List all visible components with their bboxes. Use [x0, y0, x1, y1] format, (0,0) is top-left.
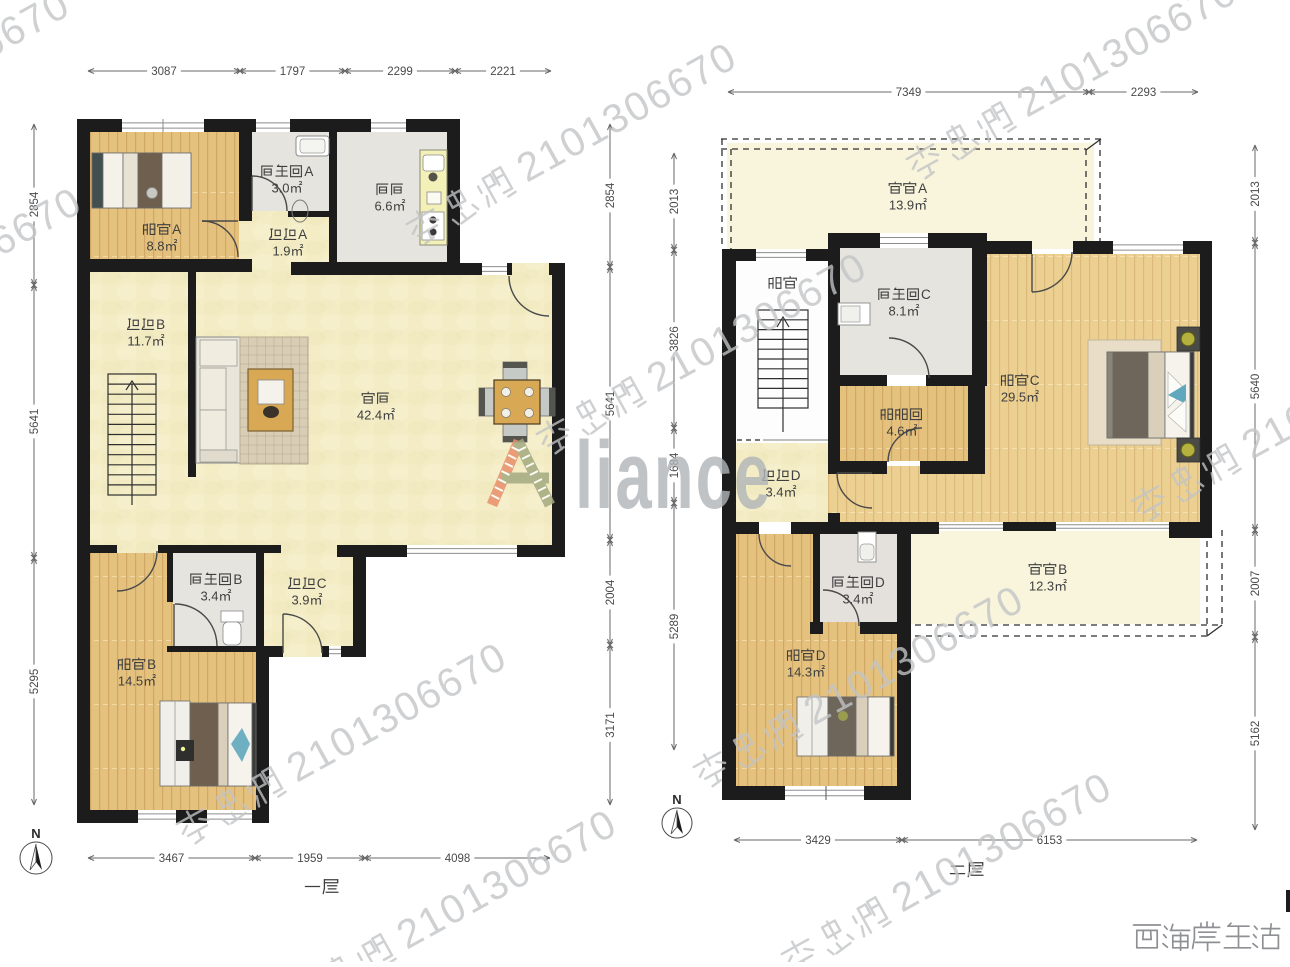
svg-text:6.6㎡: 6.6㎡	[374, 199, 405, 214]
svg-text:A: A	[918, 181, 927, 196]
svg-text:42.4㎡: 42.4㎡	[357, 408, 395, 423]
svg-text:C: C	[317, 576, 327, 591]
svg-text:B: B	[1058, 562, 1067, 577]
svg-text:3171: 3171	[605, 712, 617, 738]
svg-text:29.5㎡: 29.5㎡	[1001, 390, 1039, 405]
svg-text:N: N	[672, 792, 681, 807]
svg-text:5640: 5640	[1250, 374, 1262, 400]
svg-text:4.6㎡: 4.6㎡	[886, 424, 917, 439]
svg-text:2299: 2299	[387, 66, 413, 78]
svg-text:5162: 5162	[1250, 721, 1262, 747]
svg-text:12.3㎡: 12.3㎡	[1029, 579, 1067, 594]
svg-text:1959: 1959	[297, 853, 323, 865]
svg-text:3.4㎡: 3.4㎡	[842, 592, 873, 607]
svg-text:5295: 5295	[29, 669, 41, 695]
svg-text:2007: 2007	[1250, 571, 1262, 597]
svg-text:1.9㎡: 1.9㎡	[272, 244, 303, 259]
svg-text:A: A	[304, 164, 313, 179]
svg-text:3.4㎡: 3.4㎡	[200, 589, 231, 604]
svg-text:8.1㎡: 8.1㎡	[888, 304, 919, 319]
svg-text:D: D	[791, 468, 801, 483]
svg-text:13.9㎡: 13.9㎡	[889, 198, 927, 213]
svg-text:B: B	[147, 657, 156, 672]
svg-text:2013: 2013	[669, 189, 681, 215]
svg-text:3429: 3429	[805, 835, 831, 847]
svg-text:B: B	[156, 317, 165, 332]
svg-text:D: D	[875, 575, 885, 590]
svg-text:A: A	[298, 227, 307, 242]
svg-text:N: N	[31, 826, 40, 841]
svg-text:2221: 2221	[490, 66, 516, 78]
svg-text:D: D	[816, 648, 826, 663]
svg-text:2013: 2013	[1250, 181, 1262, 207]
svg-text:liance: liance	[575, 423, 772, 529]
svg-text:8.8㎡: 8.8㎡	[146, 239, 177, 254]
svg-text:5289: 5289	[669, 614, 681, 640]
svg-text:2004: 2004	[605, 579, 617, 605]
svg-text:3467: 3467	[159, 853, 185, 865]
svg-text:3.9㎡: 3.9㎡	[291, 593, 322, 608]
svg-text:7349: 7349	[896, 87, 922, 99]
svg-text:14.3㎡: 14.3㎡	[787, 665, 825, 680]
svg-text:A: A	[172, 222, 181, 237]
svg-text:2293: 2293	[1131, 87, 1157, 99]
svg-text:3087: 3087	[151, 66, 177, 78]
svg-text:1797: 1797	[280, 66, 306, 78]
svg-text:3.0㎡: 3.0㎡	[271, 181, 302, 196]
svg-text:4098: 4098	[445, 853, 471, 865]
svg-text:2854: 2854	[605, 182, 617, 208]
svg-text:14.5㎡: 14.5㎡	[118, 674, 156, 689]
svg-text:C: C	[921, 287, 931, 302]
svg-text:11.7㎡: 11.7㎡	[127, 334, 164, 349]
svg-text:C: C	[1030, 373, 1040, 388]
svg-text:B: B	[233, 572, 242, 587]
svg-text:5641: 5641	[29, 409, 41, 435]
